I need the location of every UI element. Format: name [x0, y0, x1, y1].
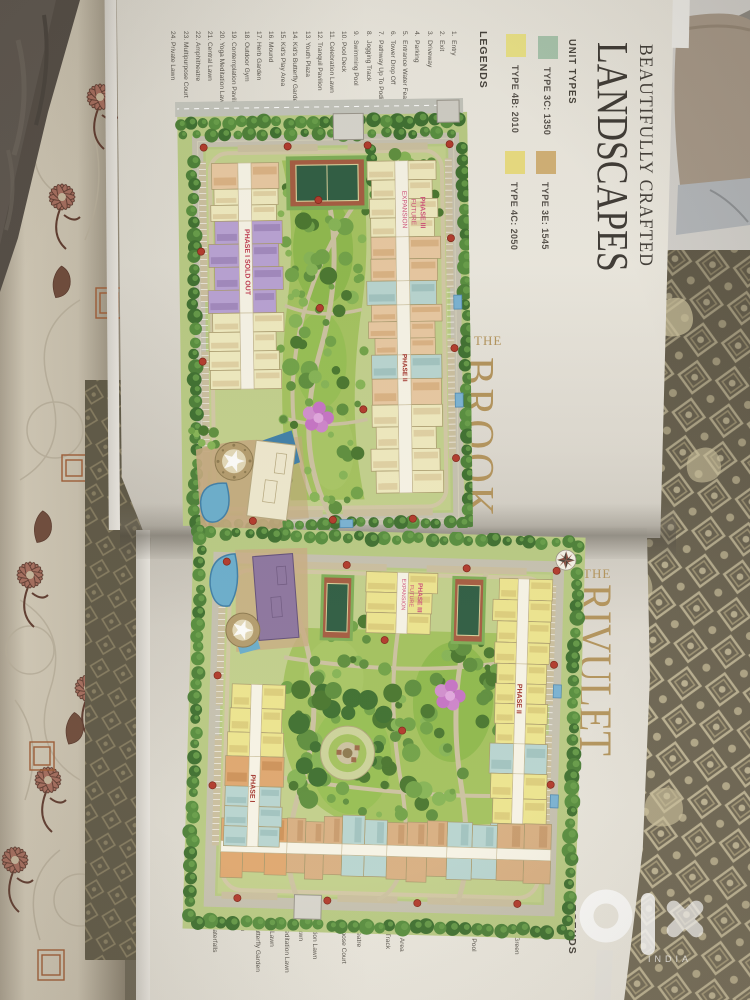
svg-text:PHASE I SOLD OUT: PHASE I SOLD OUT [243, 229, 251, 296]
svg-text:PHASE III: PHASE III [418, 196, 425, 228]
svg-text:FUTURE: FUTURE [408, 585, 415, 608]
svg-text:PHASE I: PHASE I [248, 774, 256, 802]
svg-text:EXPANSION: EXPANSION [399, 578, 406, 610]
svg-text:EXPANSION: EXPANSION [400, 191, 408, 229]
svg-text:FUTURE: FUTURE [409, 199, 416, 226]
svg-text:PHASE II: PHASE II [515, 684, 523, 714]
svg-text:PHASE II: PHASE II [401, 354, 408, 382]
svg-text:PHASE III: PHASE III [415, 583, 423, 613]
